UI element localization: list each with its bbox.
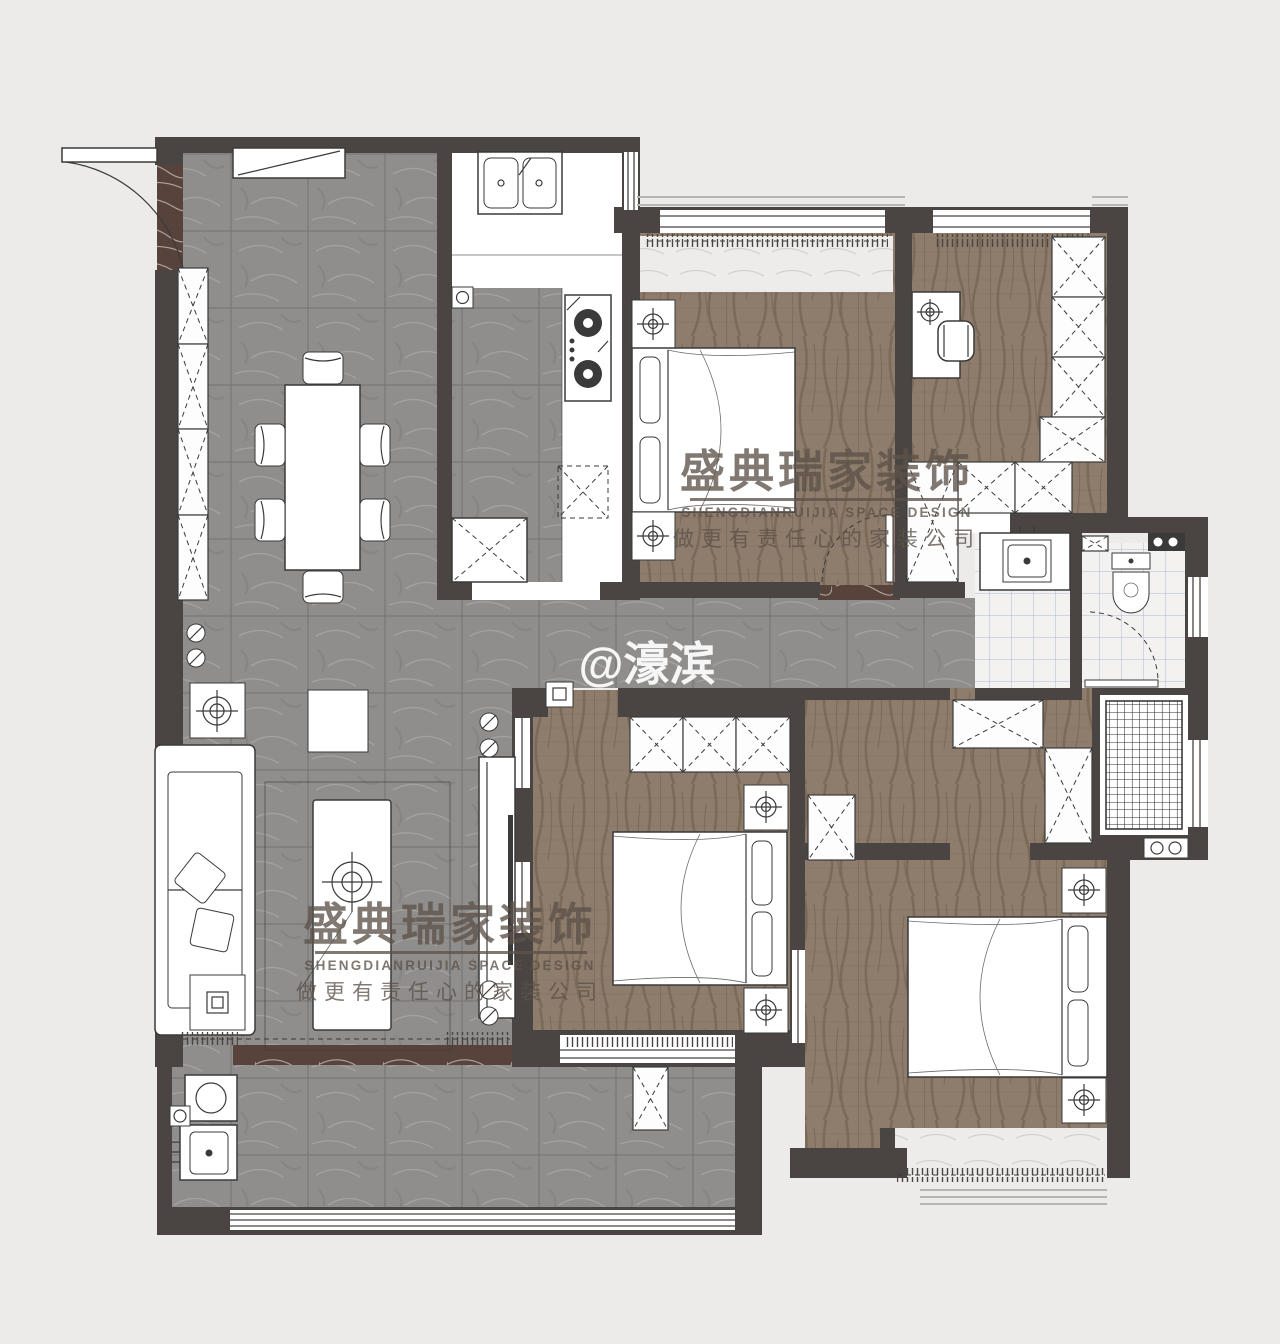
window-bedroom-1: [645, 210, 888, 247]
watermark-underline: [690, 498, 962, 501]
window-master-bottom: [897, 1168, 1107, 1204]
wall-bedroom-1-bottom: [614, 582, 820, 598]
kitchen-stove: [565, 295, 611, 401]
sofa-pillow: [189, 907, 234, 952]
wall-balcony-right-pier: [735, 1067, 762, 1235]
watermark-logo-top: 盛典瑞家装饰 SHENGDIANRUIJIA SPACE DESIGN 做更有责…: [673, 446, 981, 551]
bed: [613, 832, 787, 985]
vanity-sink: [980, 526, 1070, 590]
wall-master-window-jamb-l: [880, 1128, 895, 1178]
nightstand: [744, 988, 788, 1033]
ac-unit: [1100, 695, 1188, 858]
washing-machine: [185, 1075, 237, 1121]
window-kitchen: [624, 152, 638, 210]
floor-balcony: [172, 1067, 762, 1207]
nightstand: [632, 300, 675, 348]
watermark-handle-text: @濠滨: [579, 638, 716, 690]
nightstand: [1062, 1078, 1106, 1123]
threshold-bedroom-1: [818, 585, 900, 600]
wall-bedroom-1-bottom-r: [893, 582, 965, 598]
shoe-cabinet: [233, 148, 345, 178]
kitchen-fridge: [452, 518, 527, 582]
window-balcony-bottom: [230, 1210, 735, 1230]
watermark-slogan-text: 做更有责任心的家装公司: [673, 528, 981, 551]
watermark-underline: [315, 951, 587, 954]
wall-hall-kitchen-divider: [437, 137, 452, 582]
wall-bedroom-2-bottom-b: [1010, 513, 1128, 533]
wall-bedroom-3-top-a: [512, 688, 548, 717]
window-bath-1: [1188, 577, 1208, 637]
floor-plan-svg: 盛典瑞家装饰 SHENGDIANRUIJIA SPACE DESIGN 做更有责…: [0, 0, 1280, 1344]
watermark-brand-text: 盛典瑞家装饰: [303, 899, 597, 950]
balcony-cabinet: [633, 1067, 668, 1130]
balcony-floor-drain: [170, 1106, 190, 1126]
wall-vanity-toilet-divider: [1070, 533, 1082, 688]
exterior-ledge-lines: [637, 197, 1128, 205]
hallway-cabinet-top: [953, 700, 1043, 748]
watermark-logo-bottom: 盛典瑞家装饰 SHENGDIANRUIJIA SPACE DESIGN 做更有责…: [296, 899, 604, 1004]
nightstand: [744, 785, 788, 830]
wall-hallway-top: [805, 688, 950, 700]
window-bedroom-3-bottom: [560, 1035, 735, 1063]
watermark-brand-en-text: SHENGDIANRUIJIA SPACE DESIGN: [304, 958, 595, 973]
toilet-bowl: [1113, 572, 1149, 613]
wardrobe-corner: [808, 795, 855, 860]
kitchen-sink: [478, 152, 562, 214]
ottoman: [308, 690, 368, 752]
wall-bedroom-3-top-b: [618, 688, 790, 717]
wall-vanity-bottom: [975, 688, 1082, 700]
bed: [908, 917, 1107, 1077]
entry-door-leaf: [62, 148, 157, 162]
floor-plan-image: 盛典瑞家装饰 SHENGDIANRUIJIA SPACE DESIGN 做更有责…: [0, 0, 1280, 1344]
window-bedroom-3-left-a: [515, 718, 530, 788]
wall-top: [155, 137, 637, 153]
dining-table: [285, 385, 360, 570]
side-table: [190, 975, 245, 1030]
laundry-sink: [172, 1125, 237, 1180]
wall-master-right: [1107, 843, 1130, 1148]
wall-entry-jamb: [155, 137, 183, 165]
kitchen-floor-drain: [452, 287, 473, 308]
nightstand: [632, 512, 675, 560]
wardrobe-top: [630, 717, 790, 772]
window-sill-master: [895, 1128, 1107, 1168]
wall-kitchen-bottom-a: [437, 582, 472, 600]
side-table-lamp: [190, 683, 245, 738]
nightstand: [1062, 868, 1106, 913]
watermark-brand-text: 盛典瑞家装饰: [680, 446, 974, 497]
watermark-brand-en-text: SHENGDIANRUIJIA SPACE DESIGN: [681, 505, 972, 520]
bedroom-3-door-pivot: [546, 682, 573, 707]
hallway-cabinet-side: [1045, 748, 1092, 843]
watermark-slogan-text: 做更有责任心的家装公司: [296, 981, 604, 1004]
dining-sideboard: [178, 268, 208, 600]
window-bath-2: [1188, 740, 1208, 827]
wall-bedroom-2-right: [1107, 207, 1128, 533]
opening-master-left: [792, 950, 805, 1043]
desk-chair: [938, 321, 974, 361]
tv-console: [479, 757, 515, 1018]
